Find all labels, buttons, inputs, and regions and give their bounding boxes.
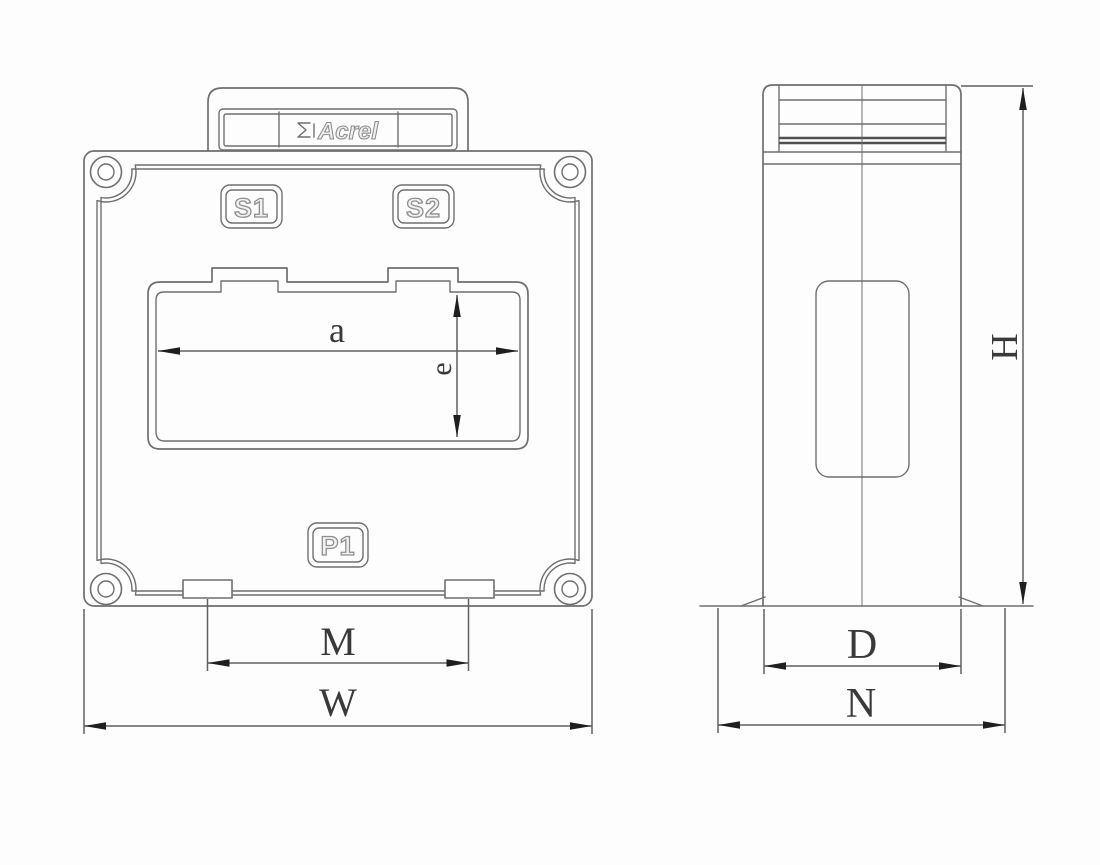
arrow-n-right	[983, 721, 1005, 729]
dimension-a: a	[158, 310, 518, 355]
dimension-n-label: N	[846, 681, 876, 727]
arrow-m-right	[447, 659, 469, 667]
terminal-label-p1: P1	[308, 523, 368, 567]
arrow-a-right	[496, 347, 518, 355]
side-view: D N H	[700, 85, 1033, 733]
brand-label: Acrel	[317, 118, 379, 145]
dimension-m: M	[208, 599, 469, 671]
flange-chamfer-left	[741, 597, 765, 606]
terminal-s2-text: S2	[406, 193, 441, 223]
dimension-e-label: e	[425, 362, 458, 375]
arrow-w-right	[570, 722, 592, 730]
acrel-logo-mark	[298, 123, 314, 137]
terminal-p1-text: P1	[320, 531, 355, 561]
dimensional-drawing: Acrel S1 S2	[0, 0, 1100, 865]
screw-bottom-left	[91, 574, 122, 605]
dimension-h: H	[961, 86, 1033, 604]
screw-top-right	[555, 157, 586, 188]
dimension-h-label: H	[984, 333, 1026, 360]
terminal-label-s1: S1	[221, 185, 282, 228]
screw-top-left	[91, 157, 122, 188]
arrow-m-left	[208, 659, 230, 667]
arrow-w-left	[84, 722, 106, 730]
dimension-d-label: D	[847, 622, 877, 668]
arrow-d-left	[764, 662, 786, 670]
mounting-foot-left	[183, 580, 232, 598]
flange-chamfer-right	[959, 597, 983, 606]
dimension-d: D	[764, 609, 961, 674]
front-view: Acrel S1 S2	[84, 88, 592, 734]
dimension-w-label: W	[319, 680, 357, 725]
dimension-m-label: M	[320, 619, 356, 664]
busbar-window-inner	[156, 281, 520, 441]
screw-bottom-right	[555, 574, 586, 605]
terminal-s1-text: S1	[234, 193, 269, 223]
busbar-window-outer	[148, 268, 528, 449]
dimension-e: e	[425, 295, 461, 437]
arrow-h-top	[1019, 88, 1027, 110]
mounting-foot-right	[445, 580, 494, 598]
arrow-e-bottom	[453, 415, 461, 437]
arrow-e-top	[453, 295, 461, 317]
terminal-label-s2: S2	[393, 185, 454, 228]
arrow-a-left	[158, 347, 180, 355]
arrow-d-right	[939, 662, 961, 670]
dimension-a-label: a	[329, 310, 345, 350]
arrow-n-left	[718, 721, 740, 729]
arrow-h-bottom	[1019, 582, 1027, 604]
